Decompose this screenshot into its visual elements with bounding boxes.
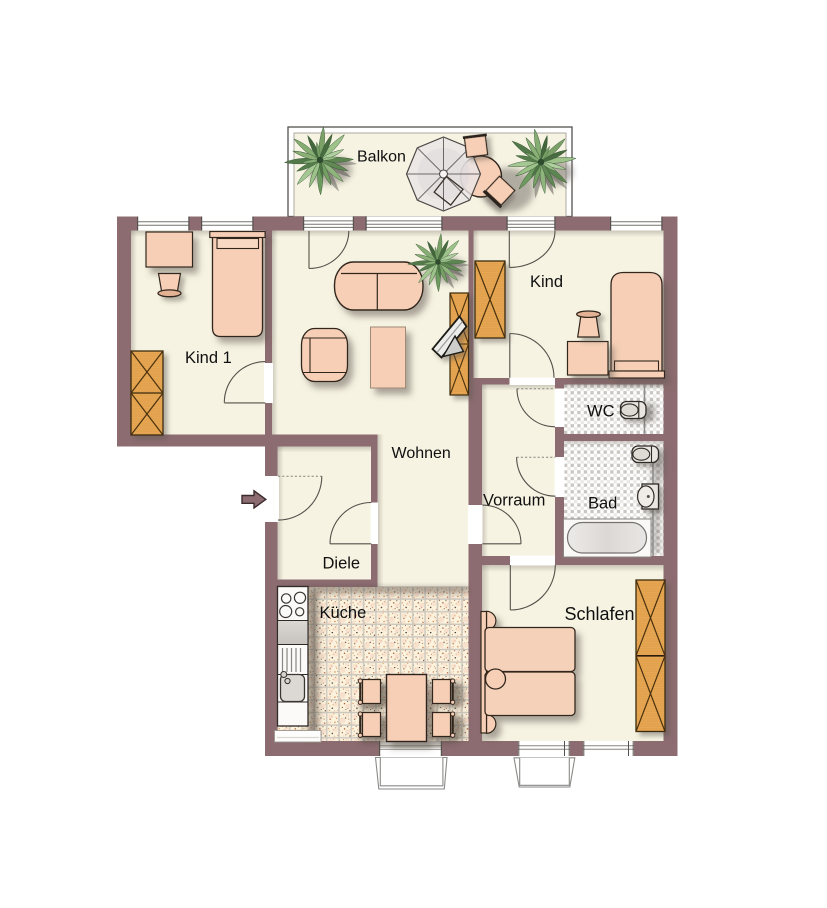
svg-text:WC: WC [587, 403, 615, 421]
svg-text:Schlafen: Schlafen [565, 604, 635, 624]
svg-text:Kind: Kind [530, 273, 563, 291]
svg-text:Küche: Küche [320, 604, 367, 622]
svg-text:Vorraum: Vorraum [483, 492, 545, 510]
svg-text:Kind 1: Kind 1 [185, 349, 232, 367]
svg-text:Bad: Bad [588, 495, 617, 513]
svg-text:Diele: Diele [323, 555, 361, 573]
svg-text:Balkon: Balkon [357, 149, 406, 166]
svg-text:Wohnen: Wohnen [392, 445, 451, 462]
